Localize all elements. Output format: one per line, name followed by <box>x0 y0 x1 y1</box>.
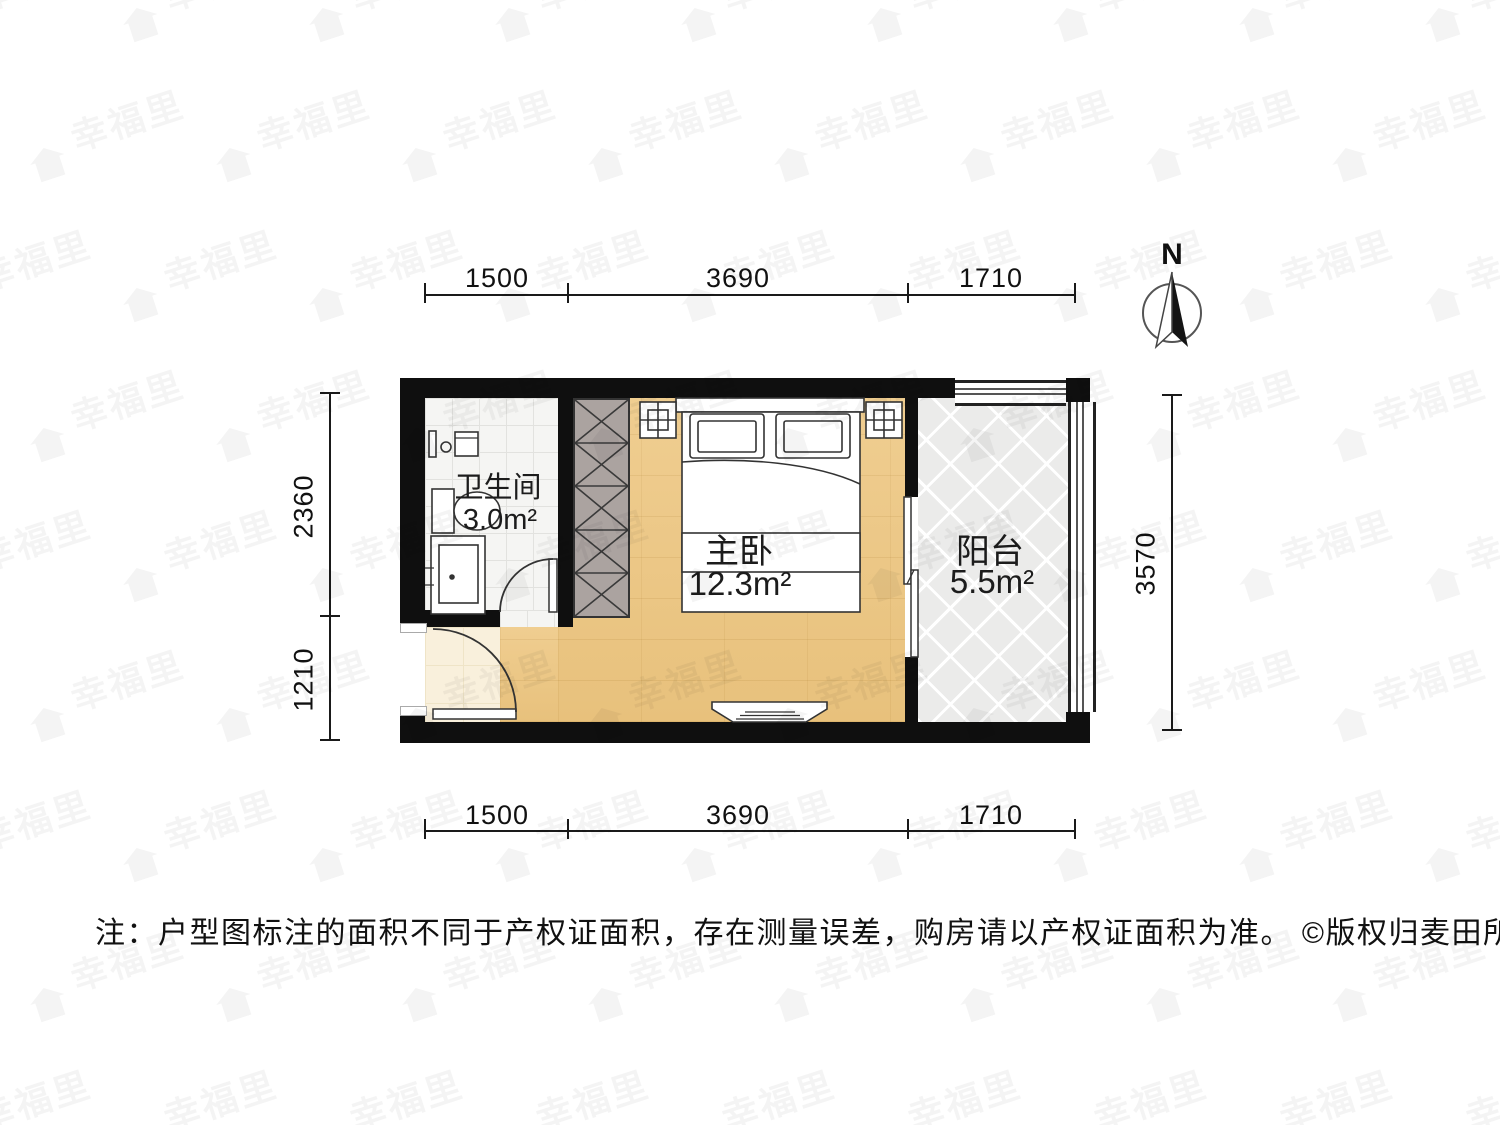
dim-top-1500: 1500 <box>447 263 547 294</box>
room-area-balcony: 5.5m² <box>922 563 1062 601</box>
dim-right-3570: 3570 <box>1131 504 1162 624</box>
entry-door-frame-top <box>400 623 427 633</box>
dim-top-3690: 3690 <box>688 263 788 294</box>
window-glass-line <box>955 393 1066 395</box>
compass-north-label: N <box>1152 238 1192 272</box>
wall-bottom <box>400 722 1090 743</box>
dim-bottom-1710: 1710 <box>941 800 1041 831</box>
wall-top <box>400 378 955 398</box>
dim-left-2360: 2360 <box>289 447 320 567</box>
entry-floor <box>425 627 500 722</box>
wardrobe <box>573 398 630 618</box>
window-glass-line <box>1076 402 1078 712</box>
window-glass-line <box>955 388 1066 390</box>
dim-top-1710: 1710 <box>941 263 1041 294</box>
wall-right-bottom-corner <box>1066 712 1090 743</box>
entry-door-frame-bottom <box>400 706 427 716</box>
room-label-bathroom: 卫生间 <box>428 464 568 506</box>
floor-plan-page: 1500 3690 1710 1500 3690 1710 2360 1210 … <box>0 0 1500 1125</box>
wall-bathroom-bottom <box>425 610 500 627</box>
balcony-top-window <box>955 380 1066 406</box>
bathroom-doorway-floor <box>500 610 558 627</box>
room-area-bathroom: 3.0m² <box>430 504 570 537</box>
room-area-bedroom: 12.3m² <box>670 565 810 603</box>
wall-top-right-corner <box>1066 378 1090 402</box>
dim-bottom-3690: 3690 <box>688 800 788 831</box>
window-glass-line <box>1082 402 1084 712</box>
wall-balcony-partition-top <box>905 398 918 497</box>
disclaimer-note: 注：户型图标注的面积不同于产权证面积，存在测量误差，购房请以产权证面积为准。 ©… <box>95 908 1455 952</box>
dim-bottom-1500: 1500 <box>447 800 547 831</box>
dim-left-1210: 1210 <box>289 620 320 740</box>
wall-balcony-partition-bottom <box>905 657 918 722</box>
wall-left <box>400 378 425 630</box>
wood-floor-strip <box>500 627 558 722</box>
balcony-right-window <box>1068 402 1096 712</box>
